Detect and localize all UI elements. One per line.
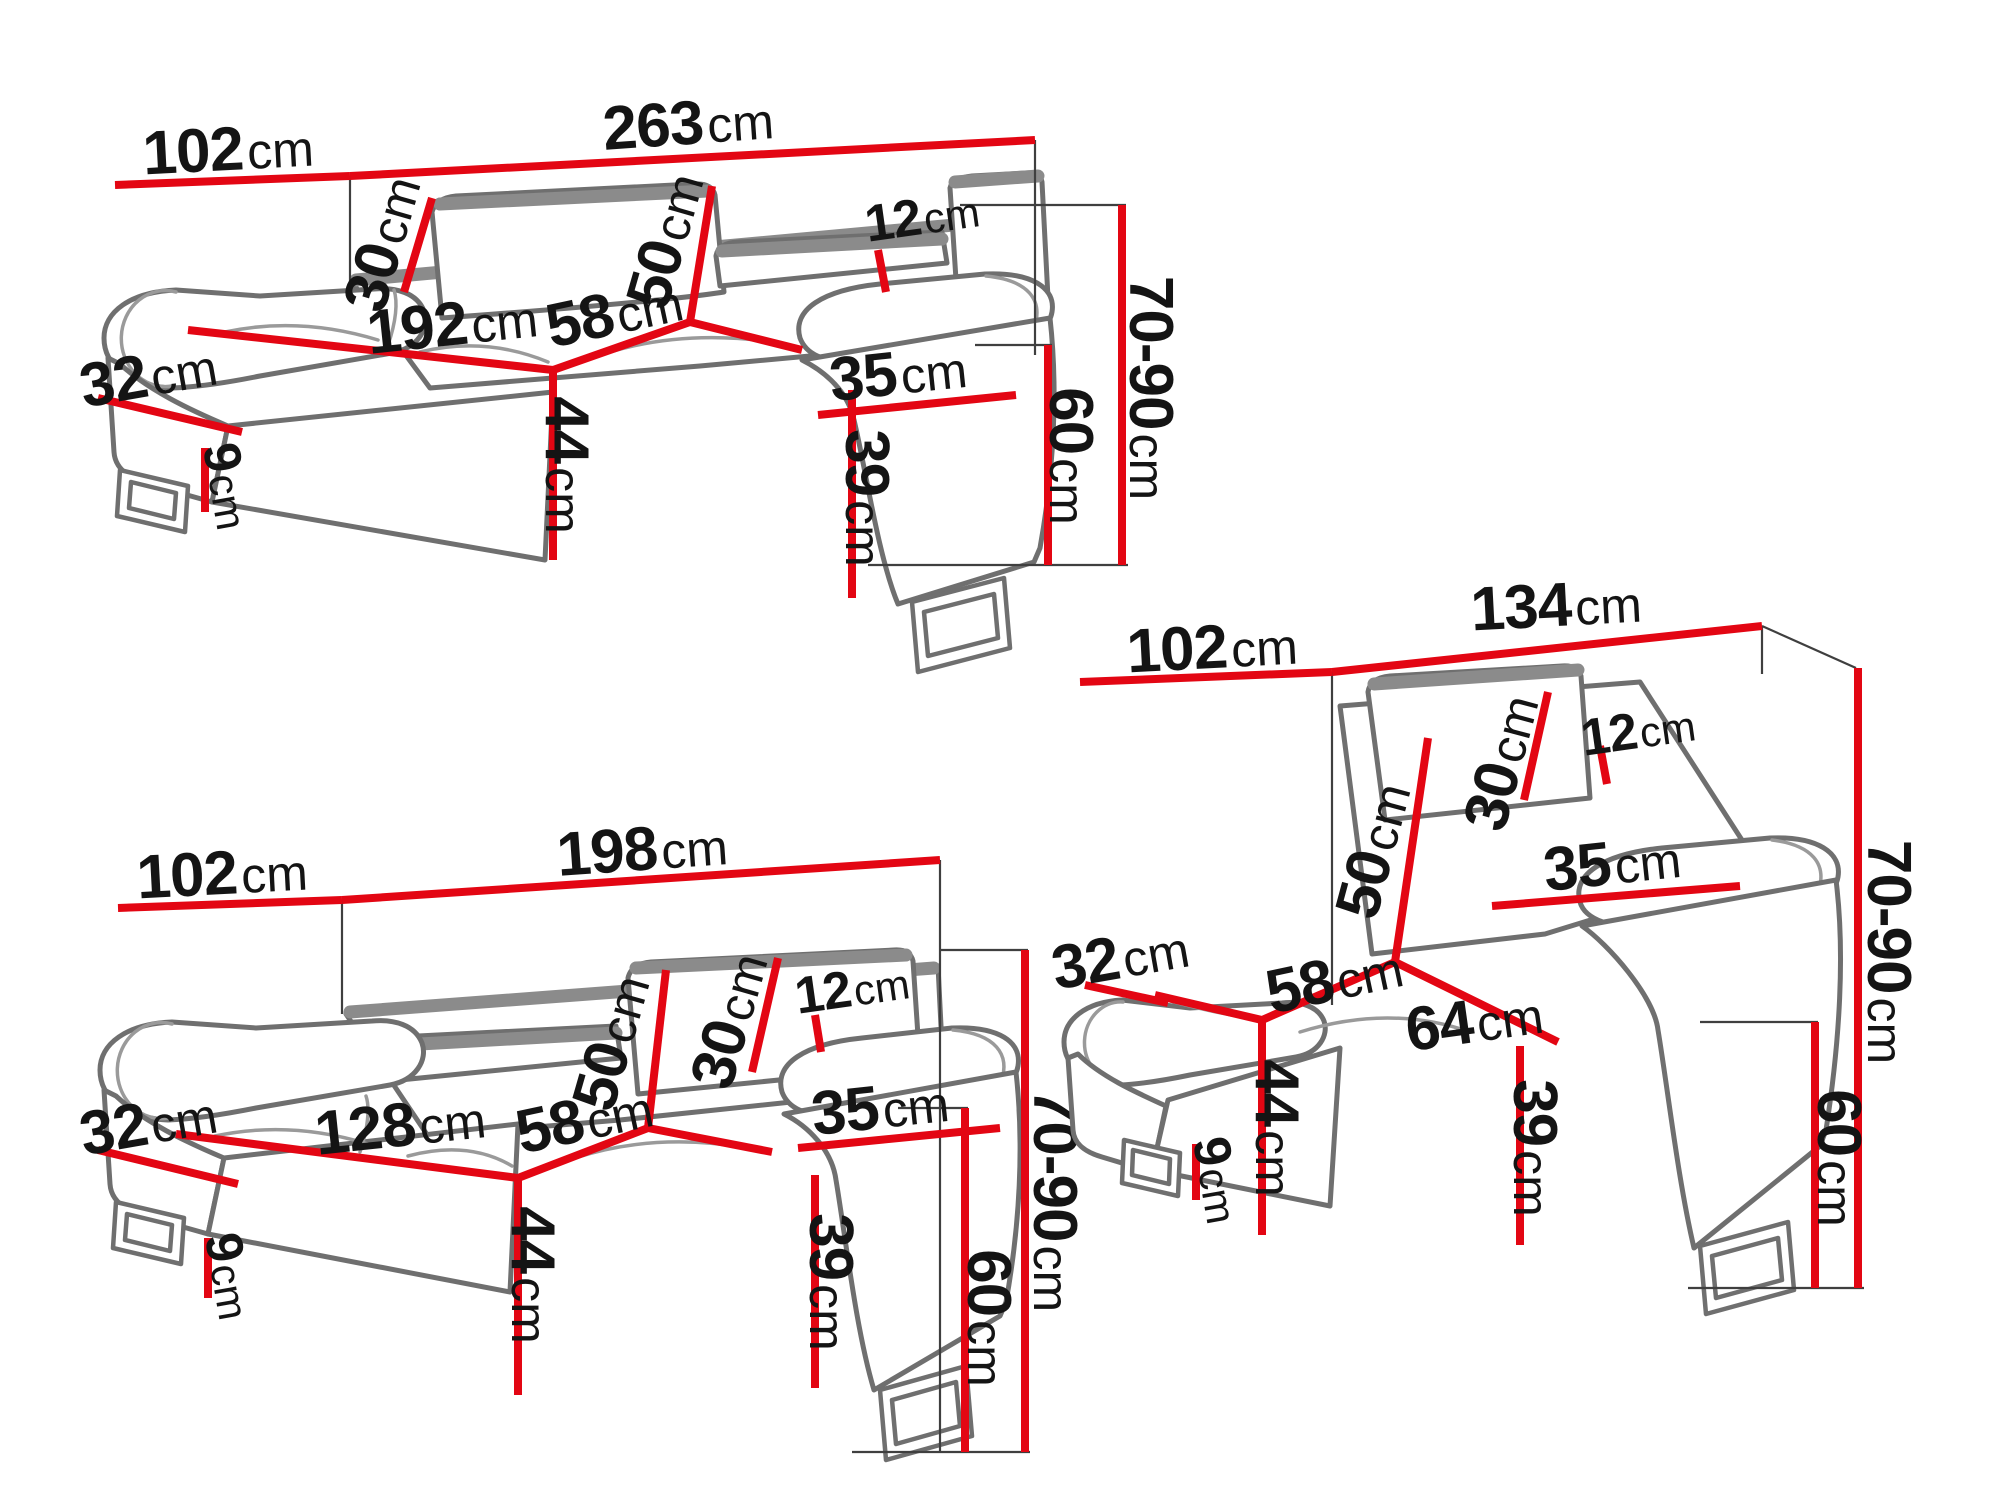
total-height-label: 70-90cm [1116, 276, 1185, 500]
width-label: 134cm [1469, 567, 1643, 645]
base-front [212, 392, 553, 560]
two-seater-outline [100, 950, 1020, 1460]
three-seater-sofa: 102cm 263cm 30cm 50cm 12cm 192cm 58cm 35… [75, 83, 1185, 672]
depth-label: 102cm [1125, 609, 1299, 687]
armrest-right-front [1582, 880, 1841, 1248]
headrest-right-top-edge [955, 176, 1038, 182]
two-seater-sofa: 102cm 198cm 50cm 30cm 12cm 128cm 58cm 35… [75, 809, 1089, 1460]
total-height-label: 70-90cm [1854, 840, 1923, 1064]
diagram-canvas: 102cm 263cm 30cm 50cm 12cm 192cm 58cm 35… [0, 0, 2000, 1500]
furniture-dimension-diagram: 102cm 263cm 30cm 50cm 12cm 192cm 58cm 35… [0, 0, 2000, 1500]
armchair: 102cm 134cm 50cm 30cm 12cm 58cm 64cm 35c… [1047, 567, 1923, 1314]
depth-label: 102cm [141, 111, 315, 189]
seat-width-label: 64cm [1401, 978, 1547, 1065]
armrest-height-label: 39cm [1500, 1079, 1569, 1217]
depth-label: 102cm [135, 835, 309, 913]
seat-depth-label: 58cm [1260, 931, 1409, 1027]
armrest-front-label: 32cm [1047, 912, 1195, 1004]
